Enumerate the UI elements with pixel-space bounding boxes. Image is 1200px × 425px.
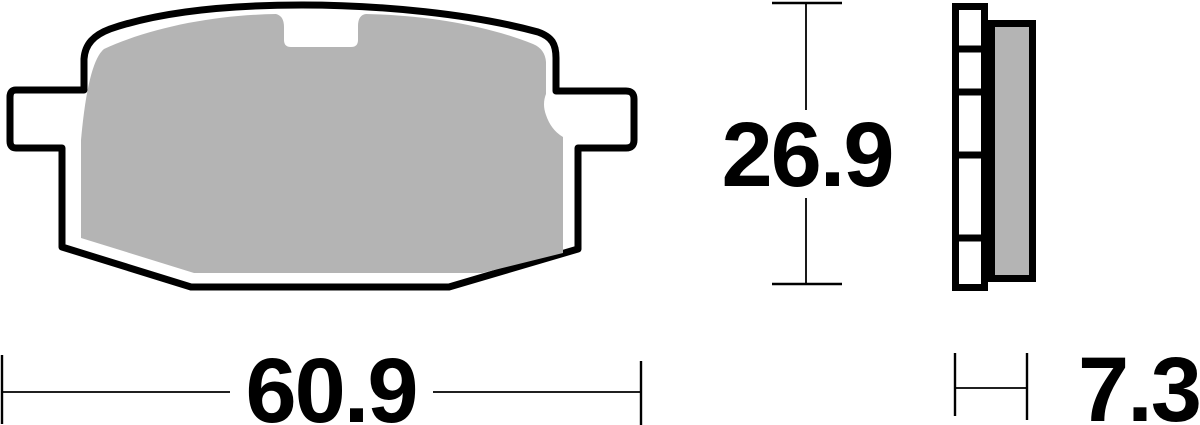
thickness-dimension: 7.3 — [955, 339, 1200, 425]
friction-material-side — [992, 24, 1033, 279]
height-value-label: 26.9 — [721, 104, 892, 206]
brake-pad-technical-drawing: 26.9 60.9 7.3 — [0, 0, 1200, 425]
width-dimension: 60.9 — [2, 340, 641, 425]
side-view — [952, 7, 1033, 288]
thickness-value-label: 7.3 — [1078, 339, 1200, 425]
front-view — [10, 5, 634, 287]
width-value-label: 60.9 — [245, 340, 416, 425]
technical-drawing-canvas: 26.9 60.9 7.3 — [0, 0, 1200, 425]
friction-material-front — [81, 14, 563, 273]
height-dimension: 26.9 — [721, 3, 892, 284]
